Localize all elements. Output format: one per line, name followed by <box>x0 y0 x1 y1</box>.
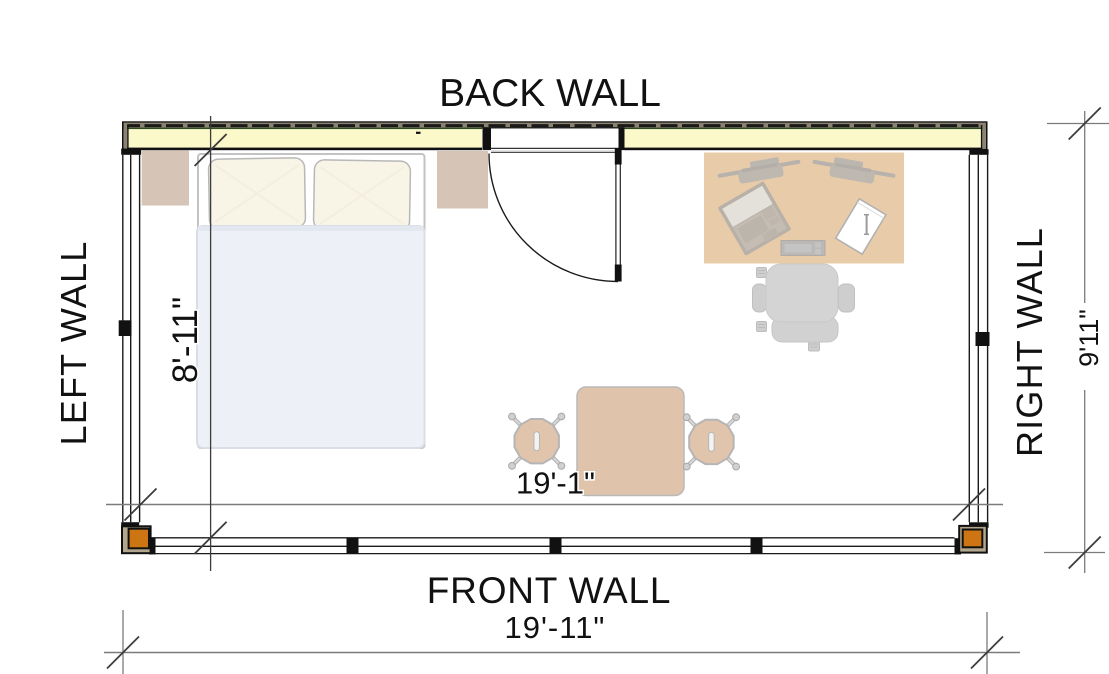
svg-text:8'-11": 8'-11" <box>166 297 205 384</box>
svg-text:9'11": 9'11" <box>1074 309 1104 367</box>
svg-text:LEFT WALL: LEFT WALL <box>53 241 94 446</box>
svg-text:FRONT WALL: FRONT WALL <box>427 570 671 611</box>
svg-text:19'-1": 19'-1" <box>516 466 595 501</box>
svg-text:19'-11": 19'-11" <box>505 610 606 645</box>
svg-text:RIGHT WALL: RIGHT WALL <box>1009 227 1050 457</box>
svg-text:BACK WALL: BACK WALL <box>439 72 661 115</box>
